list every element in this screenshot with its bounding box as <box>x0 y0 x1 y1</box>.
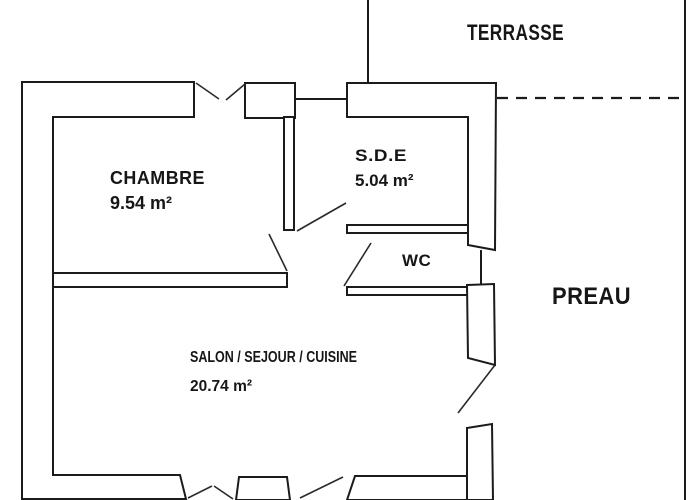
room-label-wc: WC <box>402 251 431 270</box>
wall-pier-top <box>245 83 295 118</box>
wall-bottom-right <box>347 476 467 500</box>
door-leaf-preau <box>458 365 495 413</box>
door-leaf-chambre <box>269 234 287 271</box>
wall-wc-bottom <box>347 287 468 295</box>
floor-plan-drawing: TERRASSE CHAMBRE 9.54 m² S.D.E 5.04 m² W… <box>0 0 700 500</box>
wall-right-bottom <box>467 424 493 500</box>
room-label-preau: PREAU <box>552 283 631 310</box>
door-leaf-wc <box>344 243 371 286</box>
room-label-salon: SALON / SEJOUR / CUISINE <box>190 349 357 366</box>
wall-pier-bottom <box>236 477 290 500</box>
door-leaf-salon-french-left <box>188 486 212 498</box>
floor-plan: TERRASSE CHAMBRE 9.54 m² S.D.E 5.04 m² W… <box>0 0 700 500</box>
wall-chambre-sde-divider <box>284 117 294 230</box>
door-leaf-salon-french-right <box>214 486 233 499</box>
door-leaf-chambre-terrasse-right <box>226 84 245 100</box>
wall-chambre-salon-divider <box>53 273 287 287</box>
room-label-sde: S.D.E <box>355 146 407 165</box>
room-label-terrasse: TERRASSE <box>467 20 564 45</box>
door-leaf-chambre-terrasse-left <box>196 83 219 99</box>
wall-exterior-left <box>22 82 194 499</box>
room-area-sde: 5.04 m² <box>355 171 414 190</box>
room-area-salon: 20.74 m² <box>190 378 252 395</box>
door-leaf-salon-single <box>300 477 343 498</box>
door-leaf-sde <box>297 203 346 231</box>
wall-sde-bottom <box>347 225 468 233</box>
room-label-chambre: CHAMBRE <box>110 168 205 188</box>
wall-right-mid <box>467 284 495 365</box>
room-area-chambre: 9.54 m² <box>110 193 172 213</box>
